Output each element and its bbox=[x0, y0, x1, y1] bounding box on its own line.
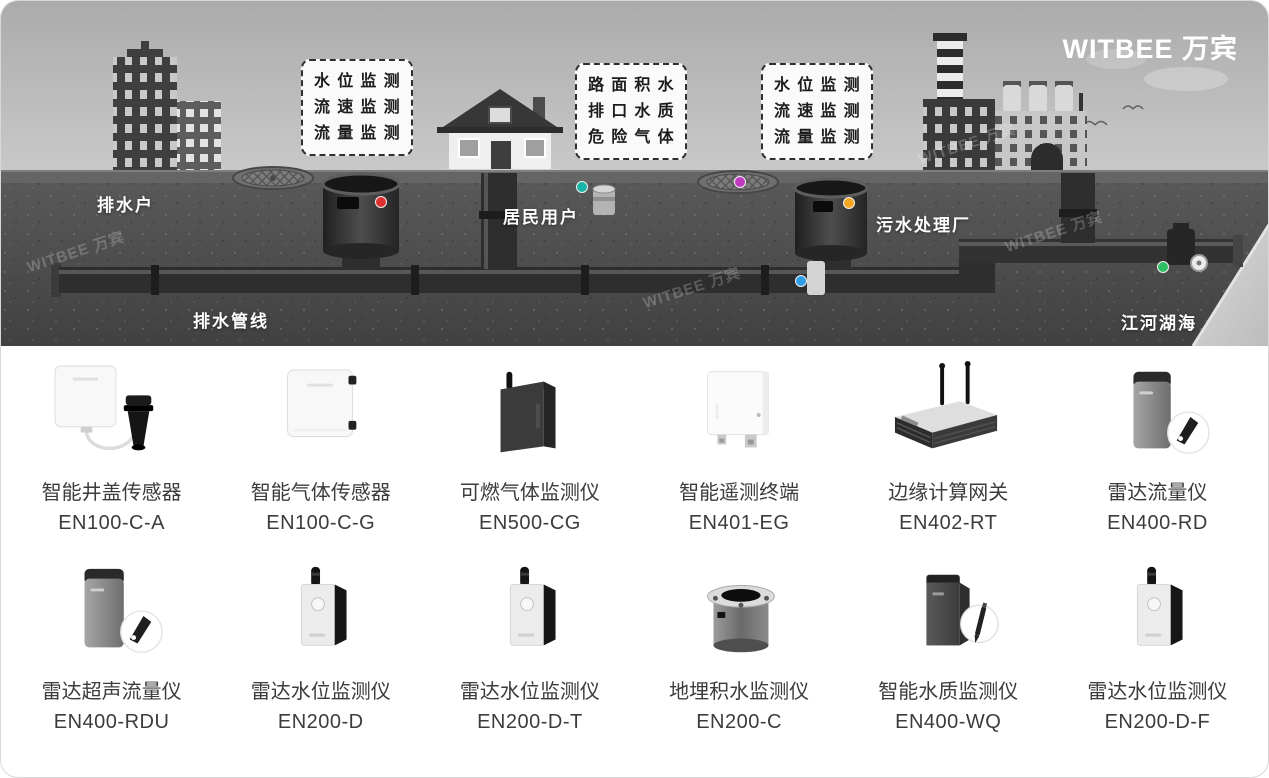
callout-monitoring-left: 水位监测 流速监测 流量监测 bbox=[301, 59, 413, 156]
manhole-cover bbox=[233, 167, 313, 189]
label-rivers: 江河湖海 bbox=[1121, 309, 1197, 334]
product-model: EN500-CG bbox=[479, 512, 581, 535]
manhole-chamber bbox=[795, 179, 867, 261]
sensor-dot-teal bbox=[577, 182, 588, 193]
callout-line: 流量监测 bbox=[314, 121, 407, 146]
product-card: 智能井盖传感器 EN100-C-A bbox=[7, 360, 216, 535]
sensor-dot-orange bbox=[844, 198, 855, 209]
label-residents: 居民用户 bbox=[503, 203, 579, 228]
brand-logo: WITBEE 万宾 bbox=[1063, 27, 1239, 66]
birds-icon bbox=[1083, 106, 1143, 125]
product-name: 雷达水位监测仪 bbox=[460, 675, 600, 704]
product-image-radar-level-monitor-t bbox=[450, 559, 610, 669]
label-sewage-plant: 污水处理厂 bbox=[876, 211, 971, 236]
product-card: 智能气体传感器 EN100-C-G bbox=[216, 360, 425, 535]
callout-line: 排口水质 bbox=[588, 99, 681, 124]
product-name: 雷达流量仪 bbox=[1107, 476, 1207, 505]
product-model: EN200-D bbox=[278, 711, 364, 734]
product-model: EN200-C bbox=[696, 711, 782, 734]
manhole-chamber bbox=[323, 174, 399, 259]
callout-line: 流速监测 bbox=[774, 99, 867, 124]
product-model: EN401-EG bbox=[689, 512, 790, 535]
product-name: 雷达水位监测仪 bbox=[1087, 675, 1227, 704]
callout-monitoring-right: 水位监测 流速监测 流量监测 bbox=[761, 63, 873, 160]
callout-monitoring-middle: 路面积水 排口水质 危险气体 bbox=[575, 63, 687, 160]
product-name: 雷达水位监测仪 bbox=[251, 675, 391, 704]
product-card: 雷达水位监测仪 EN200-D-T bbox=[425, 559, 634, 734]
product-catalog: 智能井盖传感器 EN100-C-A 智能气体传感器 EN100-C-G bbox=[1, 346, 1268, 734]
product-model: EN100-C-G bbox=[266, 512, 375, 535]
product-card: 雷达水位监测仪 EN200-D bbox=[216, 559, 425, 734]
drainage-scene: WITBEE 万宾 水位监测 流速监测 流量监测 路面积水 排口水质 危险气体 … bbox=[1, 1, 1268, 346]
product-name: 雷达超声流量仪 bbox=[42, 675, 182, 704]
product-name: 智能气体传感器 bbox=[251, 476, 391, 505]
callout-line: 水位监测 bbox=[314, 69, 407, 94]
product-model: EN400-RD bbox=[1107, 512, 1208, 535]
surface-sensor-device bbox=[593, 185, 615, 215]
product-image-radar-flow-meter bbox=[1077, 360, 1237, 470]
product-model: EN400-WQ bbox=[895, 711, 1001, 734]
callout-line: 流速监测 bbox=[314, 95, 407, 120]
sensor-dot-green bbox=[1158, 262, 1169, 273]
callout-line: 流量监测 bbox=[774, 125, 867, 150]
residential-house bbox=[437, 89, 563, 174]
product-model: EN100-C-A bbox=[58, 512, 165, 535]
label-drain-pipeline: 排水管线 bbox=[193, 307, 269, 332]
product-name: 可燃气体监测仪 bbox=[460, 476, 600, 505]
product-image-telemetry-terminal bbox=[659, 360, 819, 470]
callout-line: 危险气体 bbox=[588, 125, 681, 150]
product-model: EN402-RT bbox=[899, 512, 997, 535]
product-image-water-quality-monitor bbox=[868, 559, 1028, 669]
sensor-dot-red bbox=[376, 197, 387, 208]
product-card: 雷达超声流量仪 EN400-RDU bbox=[7, 559, 216, 734]
product-model: EN400-RDU bbox=[54, 711, 170, 734]
product-image-buried-ponding-monitor bbox=[659, 559, 819, 669]
product-image-radar-level-monitor bbox=[241, 559, 401, 669]
product-card: 智能遥测终端 EN401-EG bbox=[635, 360, 844, 535]
product-image-combustible-gas-monitor bbox=[450, 360, 610, 470]
product-model: EN200-D-F bbox=[1105, 711, 1211, 734]
product-name: 智能井盖传感器 bbox=[42, 476, 182, 505]
product-image-manhole-sensor bbox=[32, 360, 192, 470]
page-frame: WITBEE 万宾 水位监测 流速监测 流量监测 路面积水 排口水质 危险气体 … bbox=[0, 0, 1269, 778]
product-model: EN200-D-T bbox=[477, 711, 583, 734]
product-name: 智能遥测终端 bbox=[679, 476, 799, 505]
product-name: 智能水质监测仪 bbox=[878, 675, 1018, 704]
product-name: 边缘计算网关 bbox=[888, 476, 1008, 505]
product-image-radar-level-monitor-f bbox=[1077, 559, 1237, 669]
product-card: 智能水质监测仪 EN400-WQ bbox=[844, 559, 1053, 734]
product-card: 边缘计算网关 EN402-RT bbox=[844, 360, 1053, 535]
product-image-edge-gateway bbox=[868, 360, 1028, 470]
pipe-sensor-device bbox=[807, 261, 825, 295]
product-card: 雷达流量仪 EN400-RD bbox=[1053, 360, 1262, 535]
product-card: 可燃气体监测仪 EN500-CG bbox=[425, 360, 634, 535]
office-building bbox=[113, 41, 221, 173]
product-card: 雷达水位监测仪 EN200-D-F bbox=[1053, 559, 1262, 734]
product-image-radar-ultrasonic-flow-meter bbox=[32, 559, 192, 669]
callout-line: 水位监测 bbox=[774, 73, 867, 98]
label-drain-user: 排水户 bbox=[97, 191, 154, 216]
product-image-gas-sensor bbox=[241, 360, 401, 470]
sensor-dot-magenta bbox=[735, 177, 746, 188]
product-card: 地埋积水监测仪 EN200-C bbox=[635, 559, 844, 734]
sensor-dot-blue bbox=[796, 276, 807, 287]
product-name: 地埋积水监测仪 bbox=[669, 675, 809, 704]
callout-line: 路面积水 bbox=[588, 73, 681, 98]
